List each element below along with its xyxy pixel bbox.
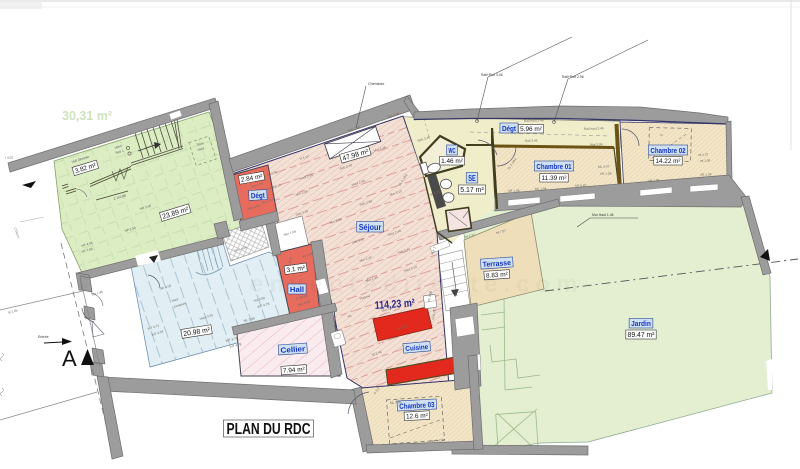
svg-text:Rail+Port 2.96: Rail+Port 2.96: [562, 75, 584, 79]
svg-text:89.47 m²: 89.47 m²: [628, 332, 656, 339]
svg-text:Jardin: Jardin: [631, 321, 651, 328]
svg-text:WC: WC: [449, 146, 456, 155]
svg-text:Chambre 02: Chambre 02: [650, 146, 685, 155]
svg-text:1.46 m²: 1.46 m²: [441, 158, 464, 165]
svg-text:enventedirecte.com: enventedirecte.com: [250, 271, 583, 298]
svg-text:12.6 m²: 12.6 m²: [406, 412, 429, 420]
svg-text:ML 7.85: ML 7.85: [390, 400, 402, 405]
svg-text:Rail haut 3.46: Rail haut 3.46: [584, 126, 604, 131]
svg-text:Cheminée: Cheminée: [368, 82, 384, 86]
svg-text:11.39 m²: 11.39 m²: [542, 175, 568, 182]
svg-text:30,31 m²: 30,31 m²: [62, 109, 112, 123]
svg-text:Chambre 03: Chambre 03: [399, 400, 435, 411]
svg-text:Mur Haut 1.46: Mur Haut 1.46: [592, 213, 614, 217]
svg-text:5.17 m²: 5.17 m²: [460, 187, 484, 194]
svg-text:Entrée: Entrée: [38, 335, 49, 339]
svg-text:Plat 3.06: Plat 3.06: [590, 142, 603, 147]
svg-text:VR 1.08: VR 1.08: [508, 189, 520, 193]
svg-text:ml 1.06: ml 1.06: [700, 158, 711, 163]
svg-text:Rail 3.46: Rail 3.46: [525, 139, 538, 143]
svg-text:VR 0.97: VR 0.97: [575, 183, 587, 188]
svg-text:Séjour: Séjour: [359, 223, 382, 232]
svg-text:SE: SE: [468, 174, 476, 183]
svg-text:Rail haut 3.46: Rail haut 3.46: [524, 118, 544, 123]
svg-text:ml 4.37: ml 4.37: [698, 152, 709, 157]
svg-text:Cellier: Cellier: [280, 344, 305, 355]
svg-text:ML 4.47: ML 4.47: [598, 164, 610, 169]
svg-text:5.96 m²: 5.96 m²: [520, 126, 543, 133]
svg-text:PLAN DU RDC: PLAN DU RDC: [227, 421, 311, 438]
svg-text:A: A: [62, 346, 77, 371]
svg-text:14.22 m²: 14.22 m²: [656, 158, 682, 165]
svg-text:Chambre 01: Chambre 01: [536, 162, 571, 171]
svg-text:Dégt: Dégt: [251, 191, 266, 201]
svg-text:VR 1.06: VR 1.06: [600, 171, 612, 176]
svg-text:ML 1.04: ML 1.04: [535, 187, 547, 191]
svg-text:VR 1.08: VR 1.08: [700, 172, 712, 177]
svg-text:Dégt: Dégt: [502, 124, 517, 133]
svg-text:VR 1.06: VR 1.06: [648, 178, 660, 183]
